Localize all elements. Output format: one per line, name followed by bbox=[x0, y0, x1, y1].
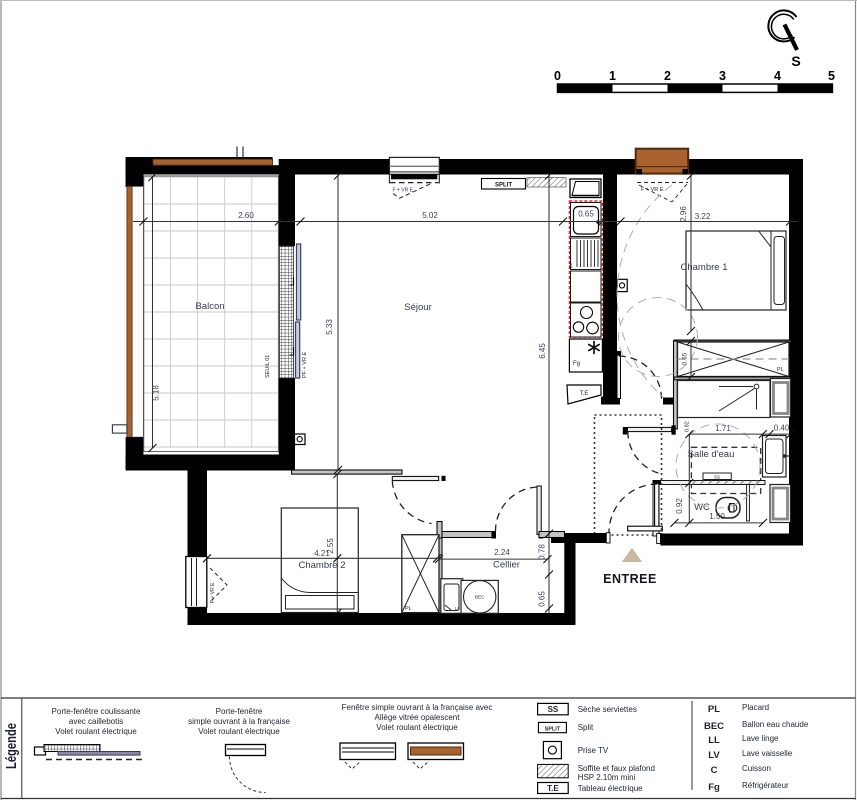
svg-text:5.02: 5.02 bbox=[422, 211, 438, 220]
svg-text:SEUIL 01: SEUIL 01 bbox=[265, 355, 271, 378]
svg-text:T.E: T.E bbox=[547, 784, 559, 793]
svg-text:HSP 2.10m mini: HSP 2.10m mini bbox=[578, 773, 636, 782]
svg-text:LV: LV bbox=[568, 262, 574, 268]
svg-text:PL: PL bbox=[405, 606, 412, 612]
svg-text:SPLIT: SPLIT bbox=[545, 726, 561, 732]
svg-text:Placard: Placard bbox=[742, 703, 769, 712]
svg-text:2.24: 2.24 bbox=[494, 548, 510, 557]
svg-text:Volet roulant électrique: Volet roulant électrique bbox=[198, 727, 280, 736]
svg-text:1.50: 1.50 bbox=[709, 512, 725, 521]
svg-text:5.18: 5.18 bbox=[152, 385, 161, 401]
svg-text:C: C bbox=[711, 765, 718, 776]
svg-text:5.33: 5.33 bbox=[325, 319, 334, 335]
svg-text:Volet roulant électrique: Volet roulant électrique bbox=[376, 723, 458, 732]
svg-text:Fg: Fg bbox=[708, 782, 720, 793]
svg-text:0.65: 0.65 bbox=[578, 210, 594, 219]
svg-text:BEC: BEC bbox=[704, 721, 724, 732]
svg-text:0.40: 0.40 bbox=[774, 424, 790, 433]
svg-text:LL: LL bbox=[455, 606, 461, 611]
svg-text:T.E: T.E bbox=[580, 391, 589, 397]
svg-text:Balcon: Balcon bbox=[195, 301, 224, 312]
svg-text:1: 1 bbox=[609, 69, 616, 83]
svg-text:SS: SS bbox=[714, 475, 720, 480]
svg-text:Cellier: Cellier bbox=[493, 560, 520, 571]
svg-text:avec caillebotis: avec caillebotis bbox=[69, 717, 123, 726]
svg-text:6.45: 6.45 bbox=[538, 343, 547, 359]
svg-text:2.60: 2.60 bbox=[238, 211, 254, 220]
svg-text:3.22: 3.22 bbox=[695, 212, 711, 221]
svg-text:Split: Split bbox=[578, 723, 594, 732]
svg-text:SPLIT: SPLIT bbox=[495, 183, 512, 189]
svg-text:2: 2 bbox=[664, 69, 671, 83]
svg-text:S: S bbox=[791, 53, 800, 69]
svg-text:Porte-fenêtre coulissante: Porte-fenêtre coulissante bbox=[52, 707, 141, 716]
svg-text:2.96: 2.96 bbox=[679, 206, 688, 222]
svg-text:Lave linge: Lave linge bbox=[742, 734, 779, 743]
svg-text:Séjour: Séjour bbox=[404, 302, 431, 313]
svg-text:0.65: 0.65 bbox=[682, 352, 689, 365]
svg-text:Tableau électrique: Tableau électrique bbox=[578, 784, 643, 793]
svg-text:PL: PL bbox=[708, 704, 720, 715]
svg-text:F + VR E: F + VR E bbox=[641, 187, 664, 193]
svg-text:3: 3 bbox=[719, 69, 726, 83]
svg-text:Fenêtre simple ouvrant à la fr: Fenêtre simple ouvrant à la française av… bbox=[342, 703, 493, 712]
svg-text:Ballon eau chaude: Ballon eau chaude bbox=[742, 720, 809, 729]
svg-text:LL: LL bbox=[708, 735, 720, 746]
svg-text:Cuisson: Cuisson bbox=[742, 764, 771, 773]
svg-text:Lave vaisselle: Lave vaisselle bbox=[742, 749, 793, 758]
svg-text:Sèche serviettes: Sèche serviettes bbox=[578, 705, 637, 714]
svg-text:0: 0 bbox=[554, 69, 561, 83]
svg-text:0.92: 0.92 bbox=[675, 498, 684, 514]
svg-text:F + VR E: F + VR E bbox=[210, 582, 216, 603]
svg-text:1.71: 1.71 bbox=[715, 424, 731, 433]
svg-text:Réfrigérateur: Réfrigérateur bbox=[742, 781, 789, 790]
svg-text:PF + VR E: PF + VR E bbox=[302, 352, 308, 378]
svg-text:Légende: Légende bbox=[3, 723, 20, 769]
svg-text:LV: LV bbox=[708, 750, 720, 761]
svg-text:Soffite et faux plafond: Soffite et faux plafond bbox=[578, 764, 655, 773]
svg-text:Volet roulant électrique: Volet roulant électrique bbox=[55, 727, 137, 736]
svg-text:0.82: 0.82 bbox=[685, 421, 691, 432]
svg-text:4: 4 bbox=[774, 69, 781, 83]
svg-text:SS: SS bbox=[548, 705, 559, 714]
svg-text:PL: PL bbox=[777, 367, 784, 373]
svg-text:5: 5 bbox=[828, 69, 835, 83]
svg-text:Salle d'eau: Salle d'eau bbox=[688, 449, 735, 460]
svg-text:Fg: Fg bbox=[573, 361, 580, 367]
svg-text:ENTREE: ENTREE bbox=[603, 572, 657, 586]
svg-text:0.65: 0.65 bbox=[538, 591, 547, 607]
svg-text:Prise TV: Prise TV bbox=[578, 746, 609, 755]
svg-text:F + VR E: F + VR E bbox=[393, 188, 414, 194]
svg-text:Chambre 1: Chambre 1 bbox=[681, 262, 728, 273]
svg-text:0.78: 0.78 bbox=[538, 544, 547, 560]
svg-text:Allège vitrée opalescent: Allège vitrée opalescent bbox=[375, 713, 461, 722]
svg-text:2.55: 2.55 bbox=[326, 538, 335, 554]
svg-text:BEC: BEC bbox=[475, 595, 485, 601]
svg-text:simple ouvrant à la française: simple ouvrant à la française bbox=[188, 717, 290, 726]
svg-text:WC: WC bbox=[694, 502, 710, 513]
svg-text:Chambre 2: Chambre 2 bbox=[299, 560, 346, 571]
svg-text:Porte-fenêtre: Porte-fenêtre bbox=[216, 707, 263, 716]
